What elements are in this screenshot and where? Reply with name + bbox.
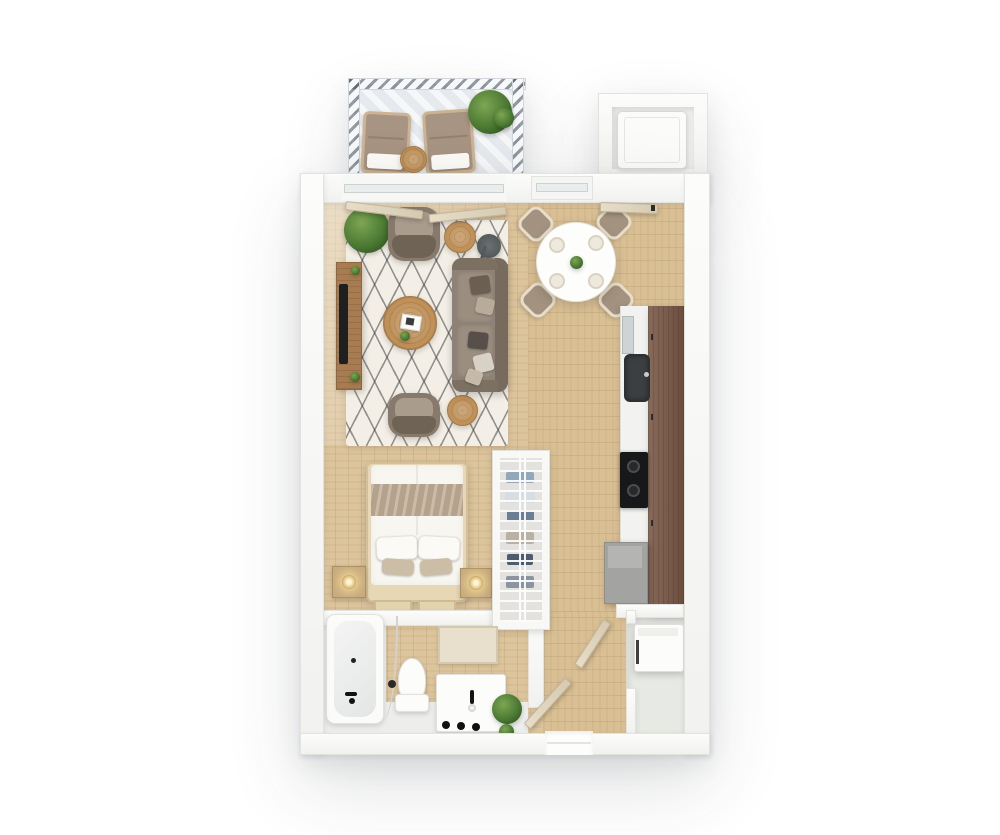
- lounge-chair-pillow: [431, 153, 470, 171]
- bed-pillow: [375, 535, 418, 561]
- armchair-back: [392, 416, 436, 434]
- folded-clothes: [507, 554, 533, 565]
- folded-clothes: [506, 576, 534, 588]
- place-setting: [549, 273, 565, 289]
- folded-clothes: [505, 490, 535, 503]
- lounge-chair-pillow: [367, 153, 404, 170]
- sofa-arm-top: [452, 258, 498, 270]
- bathroom-mirror: [438, 626, 498, 664]
- burner: [627, 484, 640, 497]
- centerpiece-plant: [570, 256, 583, 269]
- throw-pillow: [469, 275, 491, 296]
- bed-throw-blanket: [371, 484, 463, 516]
- table-lamp-right: [469, 576, 483, 590]
- place-setting: [588, 235, 604, 251]
- tub-faucet: [345, 692, 357, 696]
- bed-pillow: [417, 535, 460, 561]
- console-plant-small: [351, 266, 360, 275]
- balcony-railing-left: [348, 78, 360, 175]
- folded-clothes: [506, 472, 534, 483]
- washer-door-seam: [636, 640, 639, 664]
- sink-faucet: [644, 372, 649, 377]
- water-heater-lid-line: [624, 117, 680, 163]
- wall-utility-left: [626, 688, 636, 735]
- kitchen-sink: [624, 354, 650, 402]
- door-handle: [651, 205, 655, 211]
- armchair-south: [388, 393, 440, 437]
- tv: [339, 284, 348, 364]
- coffee-table-book: [406, 317, 415, 325]
- cabinet-handle: [651, 334, 653, 340]
- window-glass: [536, 183, 588, 192]
- closet-wire-shelving: [500, 458, 542, 622]
- wall-bottom: [300, 733, 710, 755]
- wall-left: [300, 173, 324, 755]
- tub-drain: [351, 658, 356, 663]
- bathroom-plant: [492, 694, 522, 724]
- console-plant-small-2: [350, 372, 360, 382]
- side-table-north: [444, 221, 476, 253]
- dish-rack: [622, 316, 634, 354]
- coffee-table-plant: [400, 331, 410, 341]
- lounge-chair-seam: [430, 135, 468, 140]
- vanity-knob: [457, 722, 465, 730]
- threshold-line: [547, 742, 591, 744]
- throw-pillow: [467, 331, 489, 350]
- side-table-south: [447, 395, 478, 426]
- balcony-plant-leaf: [494, 108, 514, 128]
- sofa-back: [495, 258, 508, 392]
- lounge-chair-seam: [368, 136, 404, 140]
- throw-pillow: [475, 296, 496, 315]
- folded-clothes: [507, 510, 534, 522]
- wire-standard: [519, 458, 521, 622]
- bathtub-interior: [334, 621, 376, 717]
- place-setting: [549, 237, 565, 253]
- armchair-back: [392, 235, 436, 258]
- burner: [627, 460, 640, 473]
- wall-utility-stub: [626, 610, 636, 624]
- balcony-railing-top: [348, 78, 526, 90]
- folded-clothes: [506, 532, 534, 544]
- balcony-door-glass: [344, 184, 504, 193]
- entry-hall-floor: [543, 612, 626, 735]
- bed-accent-pillow: [419, 558, 452, 577]
- tub-mixer: [349, 698, 355, 704]
- wire-standard: [524, 458, 526, 622]
- refrigerator-top: [608, 546, 642, 568]
- vanity-basin: [468, 704, 476, 712]
- cabinet-handle: [651, 414, 653, 420]
- toilet-brush: [388, 680, 396, 688]
- washer-control-panel: [638, 628, 678, 636]
- cabinet-handle: [651, 520, 653, 526]
- floor-plan-scene: [0, 0, 1000, 835]
- balcony-side-table: [400, 146, 427, 173]
- vanity-faucet: [470, 690, 474, 704]
- kitchen-cabinets: [648, 306, 684, 612]
- place-setting: [588, 273, 604, 289]
- sofa: [452, 258, 508, 392]
- balcony-railing-right: [512, 78, 524, 175]
- vanity-knob: [472, 723, 480, 731]
- wall-right: [684, 173, 710, 755]
- toilet-tank: [395, 694, 429, 712]
- vanity-knob: [442, 721, 450, 729]
- mechanical-closet-door: [600, 202, 658, 214]
- bed-accent-pillow: [381, 558, 414, 576]
- table-lamp-left: [342, 575, 356, 589]
